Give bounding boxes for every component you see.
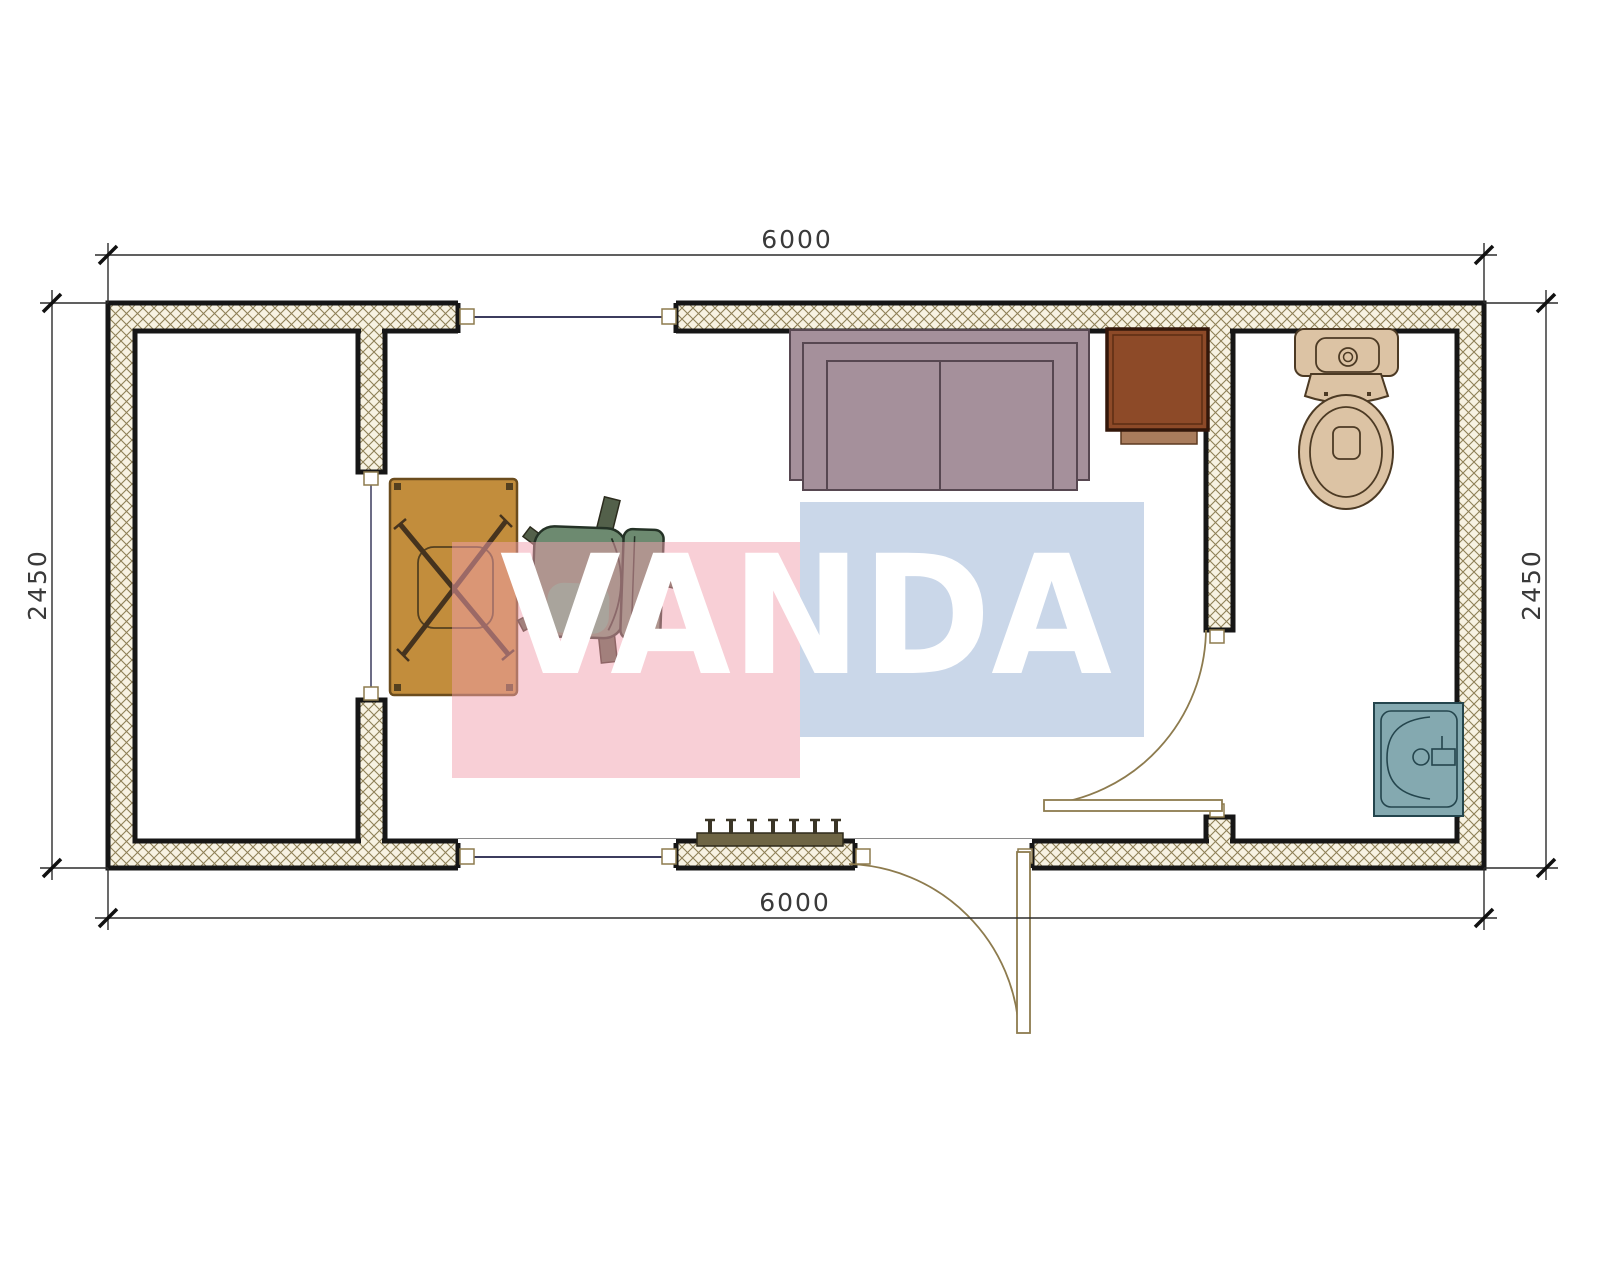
entrance-door [849, 852, 1030, 1033]
bathroom-partition-stub [1206, 817, 1233, 841]
bathroom-door-leaf [1044, 800, 1222, 811]
dimension-right-label: 2450 [1517, 549, 1546, 621]
sofa [790, 330, 1089, 490]
bathroom-partition-upper [1206, 331, 1233, 630]
left-room-partition-lower [358, 700, 385, 841]
radiator [697, 820, 843, 846]
entrance-door-leaf [1017, 852, 1030, 1033]
left-room-partition-upper [358, 331, 385, 472]
watermark: VANDA [452, 502, 1144, 778]
toilet-seat-hinge [1333, 427, 1360, 459]
dimension-left-label: 2450 [23, 549, 52, 621]
entrance-door-swing-arc [849, 864, 1019, 1033]
sink [1374, 703, 1463, 816]
wall-joint [1209, 838, 1230, 844]
toilet [1295, 329, 1398, 509]
floor-plan-canvas: VANDA 6000 6000 2450 2450 [0, 0, 1600, 1280]
cabinet [1107, 329, 1208, 444]
dimension-top-label: 6000 [761, 225, 833, 254]
wall-joint [361, 838, 382, 844]
wall-joint [361, 328, 382, 334]
wall-joint [1209, 328, 1230, 334]
watermark-text: VANDA [500, 520, 1112, 712]
dimension-bottom-label: 6000 [759, 888, 831, 917]
floor-plan-page: VANDA 6000 6000 2450 2450 [0, 0, 1600, 1280]
